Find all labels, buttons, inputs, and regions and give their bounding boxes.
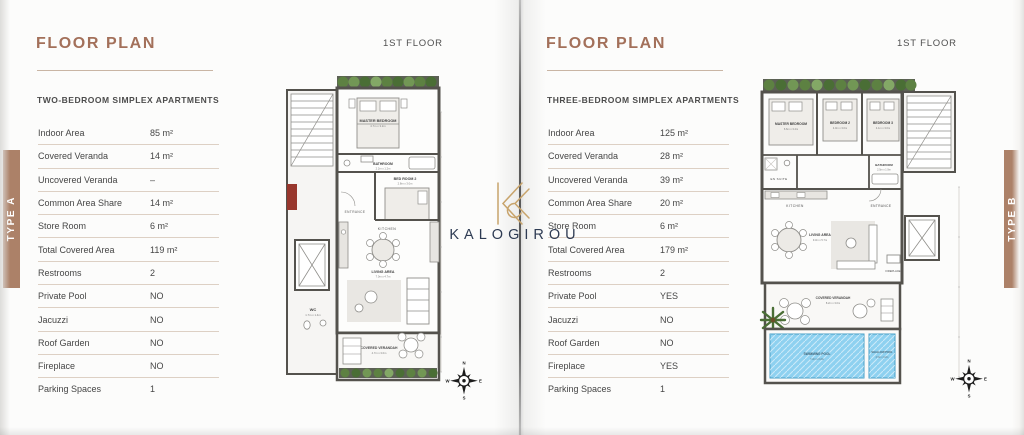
spec-label: Fireplace [38,361,150,371]
spec-label: Store Room [38,221,150,231]
compass-s: S [463,396,466,401]
spec-value: 14 m² [150,198,219,208]
living-area-label: LIVING AREA [371,270,394,274]
page-edge-left [0,0,10,435]
spec-label: Common Area Share [548,198,660,208]
spec-value: NO [660,315,729,325]
spec-label: Jacuzzi [38,315,150,325]
spec-row: JacuzziNO [548,308,729,331]
spec-value: 14 m² [150,151,219,161]
floor-plan-type-b: MASTER BEDROOM 6.6m x 3.4m BEDROOM 2 4.0… [757,77,962,407]
spec-row: Common Area Share14 m² [38,192,219,215]
spec-value: 1 [660,384,729,394]
master-bedroom-label: MASTER BEDROOM [775,122,807,126]
spec-label: Uncovered Veranda [38,175,150,185]
brochure-spread: FLOOR PLAN 1ST FLOOR TWO-BEDROOM SIMPLEX… [0,0,1024,435]
spec-value: 20 m² [660,198,729,208]
living-area-label: LIVING AREA [809,233,831,237]
spec-value: NO [150,315,219,325]
spec-row: Roof GardenNO [38,332,219,355]
compass-e: E [984,376,987,381]
page-edge-right [1012,0,1024,435]
spec-value: 2 [150,268,219,278]
bedroom2-dim: 4.0m x 3.0m [833,126,847,130]
spec-value: – [150,175,219,185]
spec-label: Jacuzzi [548,315,660,325]
spec-value: 1 [150,384,219,394]
spec-value: NO [660,338,729,348]
spec-label: Parking Spaces [548,384,660,394]
spec-label: Fireplace [548,361,660,371]
spec-value: NO [150,291,219,301]
left-header-divider [37,70,213,71]
bedroom3-dim: 4.1m x 3.0m [876,126,890,130]
spec-value: NO [150,338,219,348]
wc-label: WC [310,307,317,312]
right-header-divider [547,70,723,71]
spec-value: 28 m² [660,151,729,161]
compass-w: W [951,376,956,381]
spec-row: Uncovered Veranda– [38,169,219,192]
left-spec-table: Indoor Area85 m² Covered Veranda14 m² Un… [38,122,219,401]
spec-label: Restrooms [38,268,150,278]
living-area-dim: 9.3m x 5.7m [813,238,827,242]
spec-row: Common Area Share20 m² [548,192,729,215]
spec-row: Private PoolNO [38,285,219,308]
spec-value: 6 m² [660,221,729,231]
spec-value: YES [660,361,729,371]
compass-rose-icon: N E S W [950,355,988,399]
shallow-pool-dim: 2.5m x 3.2m [876,357,889,359]
spec-row: FireplaceNO [38,355,219,378]
veranda-label: COVERED VERANDAH [361,346,398,350]
brand-name: KALOGIROU [430,227,600,243]
spec-row: JacuzziNO [38,308,219,331]
swimming-pool-label: SWIMMING POOL [804,352,831,356]
spec-label: Restrooms [548,268,660,278]
spec-value: NO [150,361,219,371]
spec-value: 39 m² [660,175,729,185]
kitchen-label: KITCHEN [378,227,396,231]
ensuite-label: EN SUITE [770,177,787,181]
spec-value: 119 m² [150,245,219,255]
spec-label: Uncovered Veranda [548,175,660,185]
bathroom-dim: 2.2m x 1.2m [376,167,392,171]
master-bedroom-dim: 4.7m x 3.2m [370,124,386,128]
right-floor-label: 1ST FLOOR [897,38,957,49]
bathroom-dim: 2.5m x 1.9m [877,169,891,172]
spec-row: Uncovered Veranda39 m² [548,169,729,192]
master-bedroom-dim: 6.6m x 3.4m [784,127,798,131]
spec-label: Total Covered Area [548,245,660,255]
compass-n: N [462,360,465,365]
spec-label: Private Pool [38,291,150,301]
spec-label: Private Pool [548,291,660,301]
spec-label: Indoor Area [548,128,660,138]
spec-row: Private PoolYES [548,285,729,308]
bathroom-label: BATHROOM [875,163,893,167]
living-area-dim: 7.0m x 4.7m [376,275,392,279]
bathroom-label: BATHROOM [373,162,393,166]
wc-dim: 1.7m x 1.4m [305,313,321,317]
bedroom2-label: BEDROOM 2 [830,121,850,125]
right-subtitle: THREE-BEDROOM SIMPLEX APARTMENTS [547,95,739,105]
spec-label: Roof Garden [38,338,150,348]
spec-row: Restrooms2 [548,262,729,285]
veranda-dim: 4.7m x 3.0m [372,351,388,355]
spec-value: YES [660,291,729,301]
spec-value: 6 m² [150,221,219,231]
compass-e: E [479,378,482,383]
bedroom3-label: BEDROOM 3 [873,121,893,125]
spec-label: Roof Garden [548,338,660,348]
spec-label: Indoor Area [38,128,150,138]
spec-label: Parking Spaces [38,384,150,394]
spec-row: Parking Spaces1 [38,378,219,400]
spec-row: Parking Spaces1 [548,378,729,400]
compass-n: N [967,358,970,363]
spec-value: 179 m² [660,245,729,255]
veranda-dim: 8.2m x 3.0m [826,301,840,305]
floor-plan-type-a: WC 1.7m x 1.4m MASTER BEDROOM 4.7m x 3.2… [283,72,443,404]
spec-value: 85 m² [150,128,219,138]
page-edge-bottom [0,427,1024,435]
veranda-label: COVERED VERANDAH [816,296,851,300]
spec-value: 125 m² [660,128,729,138]
spec-row: Roof GardenNO [548,332,729,355]
spec-label: Total Covered Area [38,245,150,255]
entrance-label: ENTRANCE [871,204,892,208]
compass-rose-icon: N E S W [445,357,483,401]
spec-row: FireplaceYES [548,355,729,378]
brand-monogram-icon [494,182,534,225]
left-page-title: FLOOR PLAN [36,35,156,53]
shallow-pool-label: SHALLOW POOL [871,350,893,354]
spec-row: Indoor Area85 m² [38,122,219,145]
compass-w: W [446,378,451,383]
master-bedroom-label: MASTER BEDROOM [360,119,397,123]
swimming-pool-dim: 7.2m x 3.2m [810,358,824,361]
spec-row: Covered Veranda14 m² [38,145,219,168]
bedroom2-dim: 2.8m x 3.0m [398,182,414,186]
spec-label: Covered Veranda [38,151,150,161]
fireplace-label: FIREPLACE [886,269,901,273]
right-spec-table: Indoor Area125 m² Covered Veranda28 m² U… [548,122,729,401]
spec-value: 2 [660,268,729,278]
right-page-title: FLOOR PLAN [546,35,666,53]
compass-s: S [968,394,971,399]
spec-row: Total Covered Area119 m² [38,238,219,261]
spec-row: Store Room6 m² [38,215,219,238]
left-subtitle: TWO-BEDROOM SIMPLEX APARTMENTS [37,95,219,105]
entrance-label: ENTRANCE [345,210,366,214]
spec-row: Covered Veranda28 m² [548,145,729,168]
spec-label: Covered Veranda [548,151,660,161]
kitchen-label: KITCHEN [786,204,804,208]
spec-label: Common Area Share [38,198,150,208]
left-floor-label: 1ST FLOOR [383,38,443,49]
store-room-marker [287,184,297,210]
bedroom2-label: BED ROOM 2 [394,177,417,181]
spec-row: Indoor Area125 m² [548,122,729,145]
spec-row: Restrooms2 [38,262,219,285]
